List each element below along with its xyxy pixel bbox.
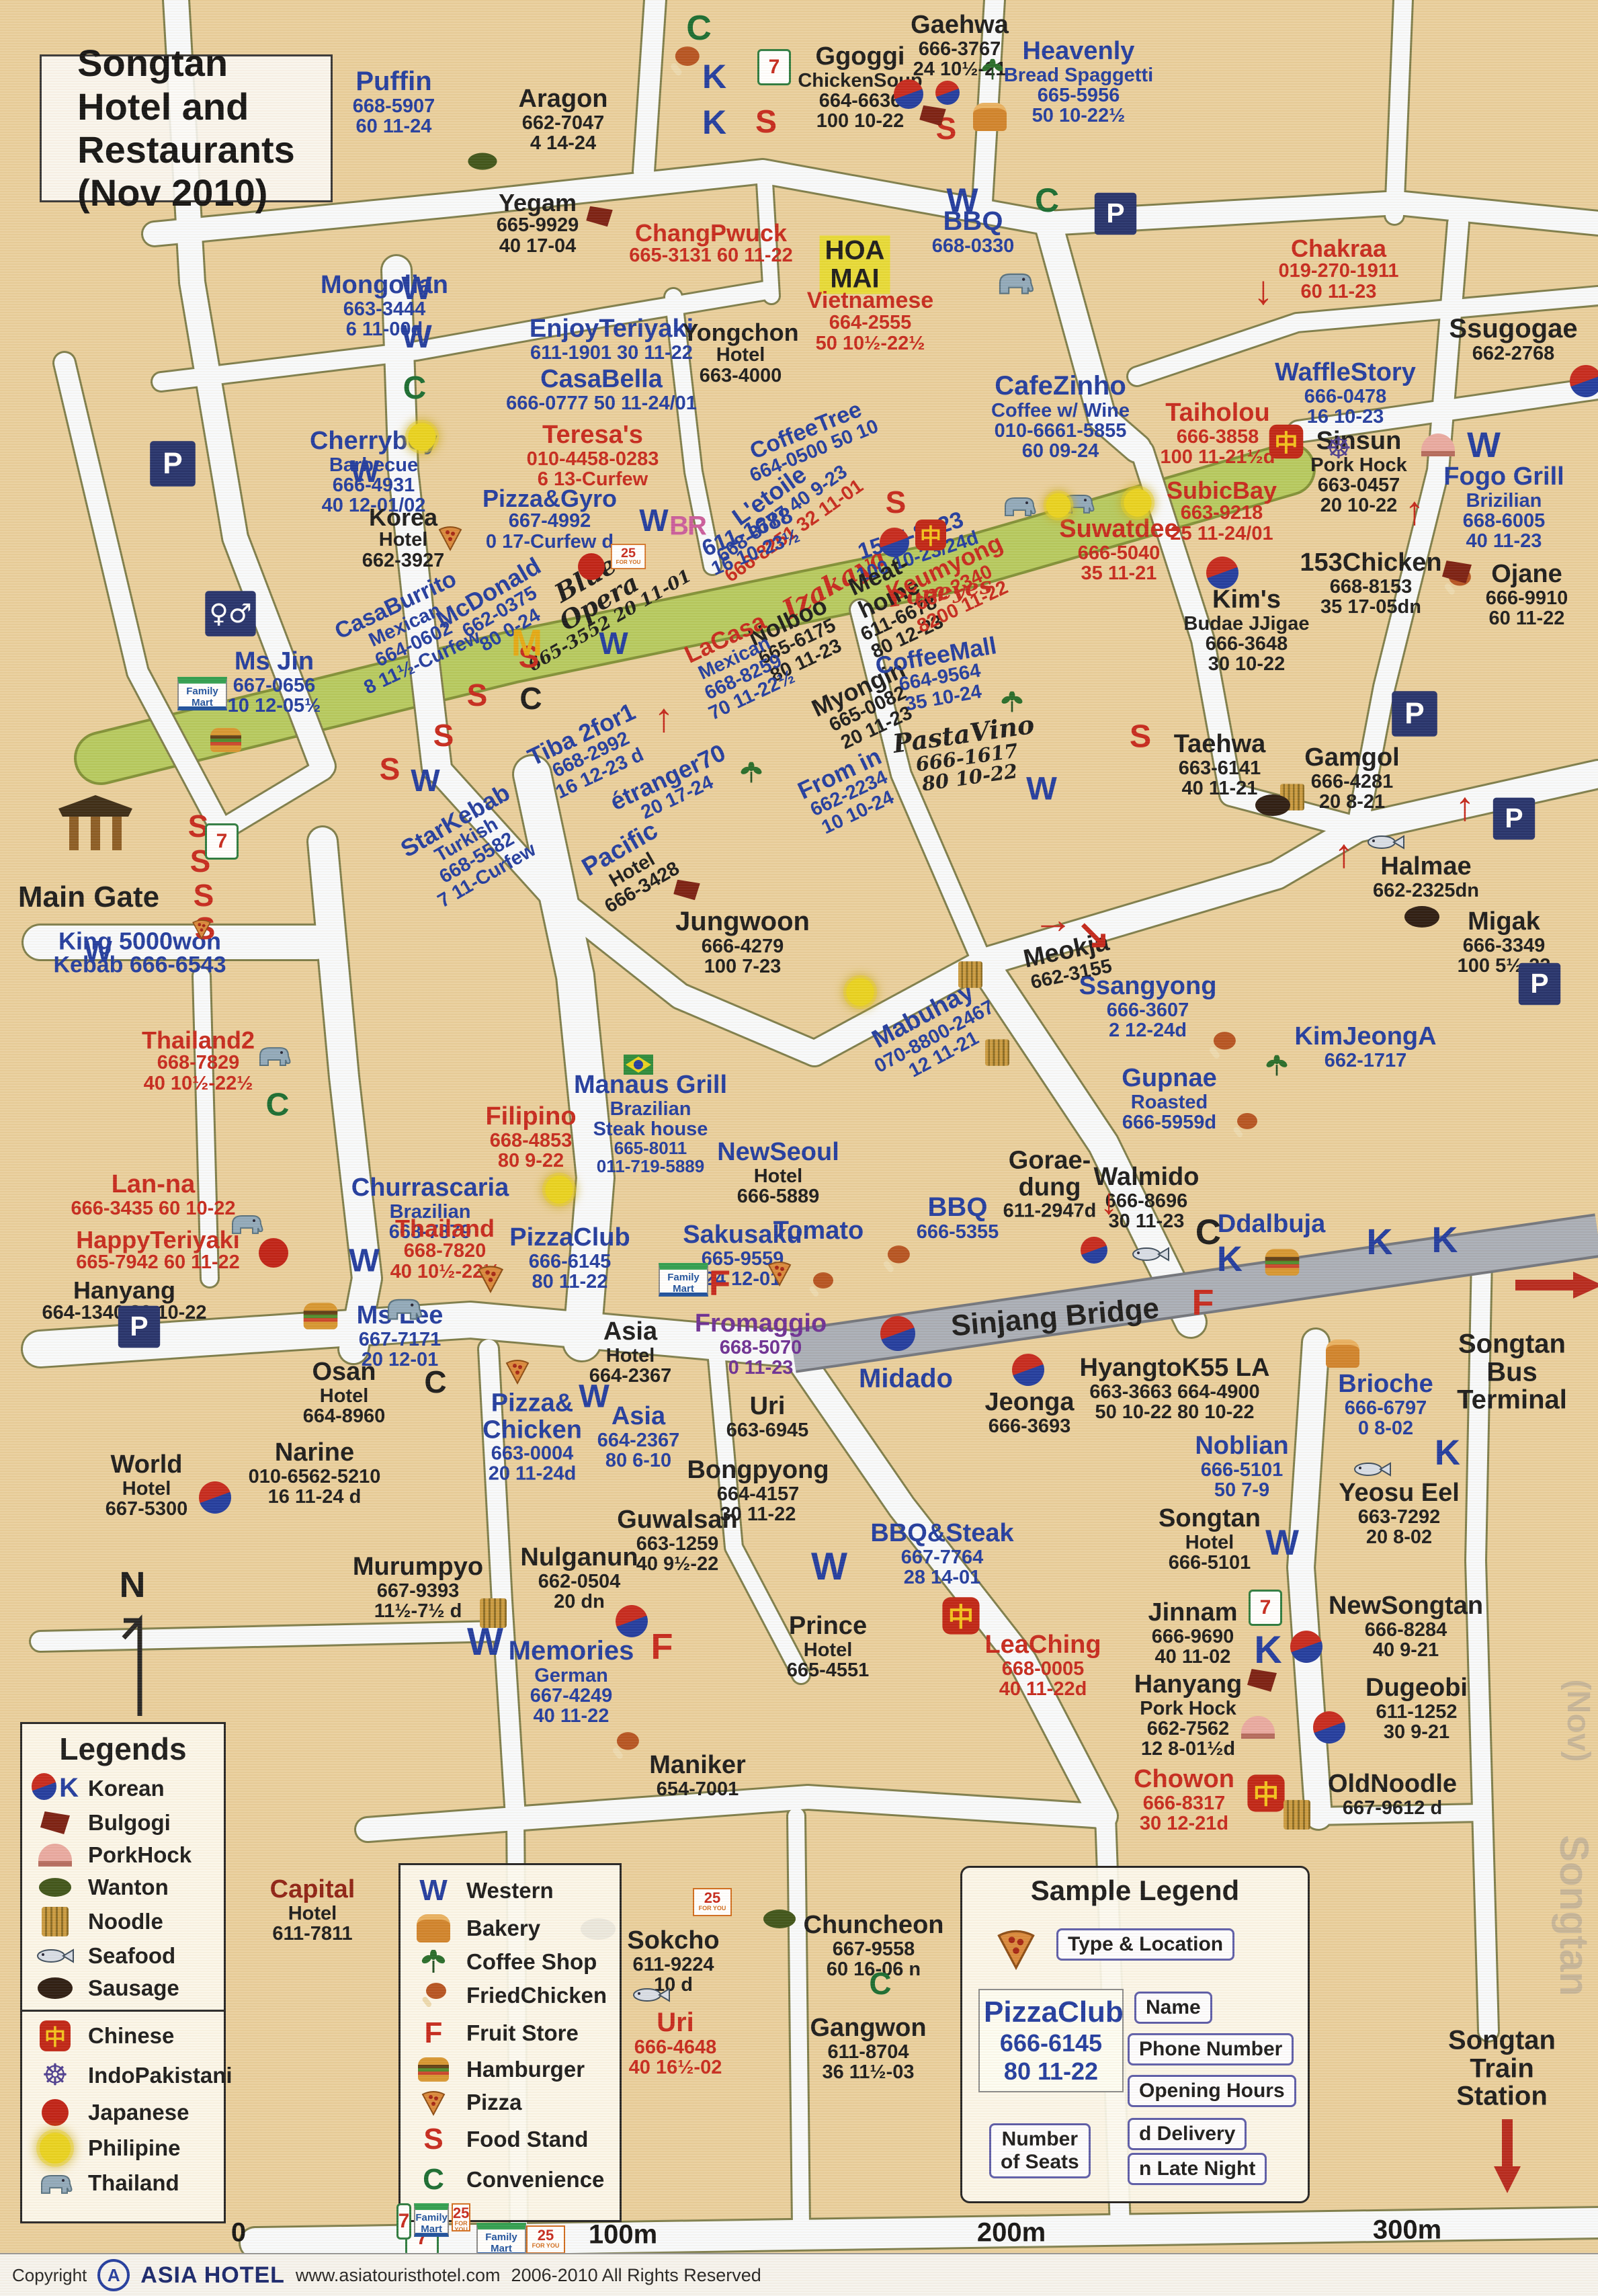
narine-line-2: 16 11-24 d [249, 1487, 381, 1507]
leaching: LeaChing668-000540 11-22d [984, 1632, 1101, 1699]
m-c6: C [869, 1968, 891, 2000]
pizza-icon [995, 1927, 1038, 1970]
ojane-line-0: Ojane [1486, 561, 1568, 588]
noo-icon [958, 961, 982, 988]
dugeobi-line-1: 611-1252 [1365, 1702, 1468, 1722]
ggoggi-taegeuk [935, 81, 960, 105]
teresas: Teresa's010-4458-02836 13-Curfew [527, 422, 659, 489]
sokcho: Sokcho611-922410 d [627, 1928, 719, 1995]
nulganun-line-0: Nulganun [520, 1545, 638, 1571]
noblian-line-1: 666-5101 [1195, 1460, 1288, 1480]
pork-icon [1241, 1716, 1275, 1739]
prince-line-0: Prince [787, 1613, 870, 1640]
m-s5-line-0: S [433, 720, 454, 752]
pizza-icon [420, 2089, 447, 2116]
aragon-line-0: Aragon [519, 86, 608, 113]
m-7a-seven: 7 [757, 49, 791, 85]
gangwon-line-1: 611-8704 [810, 2042, 926, 2062]
jinnam-line-1: 666-9690 [1148, 1627, 1237, 1647]
heavenly-line-0: Heavenly [1004, 38, 1153, 65]
king5000-pza [191, 918, 212, 940]
thailand2-line-1: 668-7829 [142, 1053, 255, 1073]
legend-type-label: Bakery [466, 1916, 540, 1941]
changpwuck: ChangPwuck665-3131 60 11-22 [629, 220, 793, 266]
halmae-fish [1367, 834, 1404, 850]
manausgrill-line-2: Steak house [574, 1119, 727, 1139]
bbq-mid-drum [881, 1244, 911, 1275]
hoamai-info-line-2: 50 10½-22½ [807, 333, 933, 354]
chuncheon-line-1: 667-9558 [804, 1939, 944, 1959]
coffee-plant-icon [420, 1950, 447, 1974]
memories-line-0: Memories [509, 1637, 634, 1666]
ggoggi-bul [919, 106, 946, 126]
ggoggi-line-3: 100 10-22 [798, 111, 922, 131]
nulganun-taegeuk [616, 1605, 648, 1637]
msjin: Ms Jin667-065610 12-05½ [228, 649, 321, 716]
halmae-line-0: Halmae [1373, 854, 1479, 880]
saus-icon [38, 1977, 73, 1999]
m-w7-line-0: W [411, 765, 439, 797]
kims: Kim'sBudae JJigae666-364830 10-22 [1184, 587, 1310, 674]
walmido-taegeuk [1081, 1237, 1107, 1264]
wafflestory-line-2: 16 10-23 [1275, 407, 1416, 427]
prince: PrinceHotel665-4551 [787, 1613, 870, 1680]
map-title-box: Songtan Hotel and Restaurants (Nov 2010) [40, 54, 333, 202]
sample-legend-box: Sample Legend Type & Location PizzaClub … [960, 1866, 1310, 2203]
coffee-plant-icon [1265, 1055, 1289, 1077]
songtan-hotel-line-0: Songtan [1159, 1506, 1261, 1532]
pizzaclub-line-2: 80 11-22 [509, 1272, 630, 1292]
goraedung-line-2: 611-2947d [1003, 1200, 1097, 1221]
songtan-hotel-line-2: 666-5101 [1159, 1553, 1261, 1573]
pizzaclub: PizzaClub666-614580 11-22 [509, 1225, 630, 1292]
uri-s: Uri666-464840 16½-02 [629, 2009, 722, 2078]
bbqsteak-line-2: 28 14-01 [870, 1567, 1013, 1588]
brd-icon [973, 103, 1007, 131]
compass-arrow-icon [120, 1608, 156, 1716]
legend-food-label: IndoPakistani [88, 2063, 233, 2088]
callout-seats: Number of Seats [989, 2123, 1091, 2178]
compass-n-line-0: N [120, 1566, 146, 1604]
aragon-wan [468, 153, 497, 169]
yongchon-line-1: Hotel [682, 345, 798, 366]
filipino: Filipino668-485380 9-22 [485, 1104, 576, 1171]
leaching-line-2: 40 11-22d [984, 1679, 1101, 1699]
asia-hotel-logo: A [97, 2259, 130, 2291]
callout-delivery: d Delivery [1128, 2118, 1247, 2150]
legend-food-item-sausage: Sausage [22, 1972, 224, 2004]
fm-icon: FamilyMart [659, 1263, 708, 1297]
footer: Copyright A ASIA HOTEL www.asiatouristho… [0, 2253, 1598, 2296]
narine: Narine010-6562-521016 11-24 d [249, 1440, 381, 1507]
train-station-trainarrow [1494, 2119, 1521, 2193]
heavenly-line-2: 665-5956 [1004, 85, 1153, 106]
sun-icon [846, 978, 874, 1006]
thailand2: Thailand2668-782940 10½-22½ [142, 1028, 255, 1094]
leaching-line-0: LeaChing [984, 1632, 1101, 1659]
ghost-1-line-0: Songtan [1553, 1835, 1595, 1996]
mcd-icon: M [511, 621, 543, 665]
prince-line-1: Hotel [787, 1640, 870, 1660]
yeosu-line-1: 663-7292 [1339, 1507, 1460, 1527]
capital-line-1: Hotel [270, 1903, 355, 1924]
m-s1: S [755, 106, 777, 139]
m-c5-line-0: C [424, 1366, 446, 1399]
uri-s-fish [632, 1987, 670, 2003]
m-f2: F [651, 1628, 673, 1666]
pork-icon [38, 1844, 72, 1867]
elephant-icon [384, 1295, 422, 1320]
yongchon-line-2: 663-4000 [682, 366, 798, 386]
jinnam-line-0: Jinnam [1148, 1600, 1237, 1627]
cafezinho-line-0: CafeZinho [991, 372, 1130, 401]
footer-brand: ASIA HOTEL [140, 2262, 285, 2289]
songtan-hotel-line-1: Hotel [1159, 1532, 1261, 1553]
memories-line-3: 40 11-22 [509, 1706, 634, 1726]
letter-W-icon: W [1265, 1523, 1299, 1563]
chn-icon: 中 [1247, 1774, 1284, 1811]
bbqsteak: BBQ&Steak667-776428 14-01 [870, 1520, 1013, 1588]
noblian-line-2: 50 7-9 [1195, 1480, 1288, 1500]
ghost-2-line-0: (Nov) [1561, 1680, 1595, 1762]
m-ar5: ↑ [1455, 786, 1475, 827]
m-w1-line-0: W [946, 183, 978, 218]
legend-food-label: PorkHock [88, 1842, 192, 1868]
pizzachicken-line-0: Pizza& [482, 1390, 582, 1417]
chakraa-line-1: 019-270-1911 [1279, 261, 1399, 282]
bbqsteak-line-1: 667-7764 [870, 1547, 1013, 1567]
gaehwa-line-0: Gaehwa [911, 12, 1009, 39]
noo-icon [985, 1039, 1009, 1066]
manausgrill: Manaus GrillBrazilianSteak house665-8011… [574, 1072, 727, 1176]
mabuhay-sun [846, 978, 874, 1006]
jungwoon: Jungwoon666-4279100 7-23 [675, 908, 810, 977]
newseoul: NewSeoulHotel666-5889 [717, 1139, 839, 1206]
pizzachicken: Pizza&Chicken663-000420 11-24d [482, 1390, 582, 1483]
pizza-icon [995, 1927, 1038, 1970]
dugeobi-taegeuk [1313, 1711, 1345, 1744]
legend-food-item-korean: KKorean [22, 1770, 224, 1807]
m-7b-seven: 7 [205, 823, 239, 860]
casabella-line-0: CasaBella [506, 366, 697, 393]
letter-F-icon: F [709, 1264, 730, 1304]
chakraa-line-2: 60 11-23 [1279, 282, 1399, 302]
scale-label-0: 0 [231, 2218, 246, 2248]
migak-line-1: 666-3349 [1458, 936, 1551, 956]
br-icon: BR [669, 511, 706, 542]
elephant-icon [256, 1044, 291, 1067]
legend-type-label: Convenience [466, 2167, 604, 2192]
guwalsan-line-0: Guwalsan [617, 1507, 738, 1534]
asia-hotel-line-1: Hotel [589, 1346, 672, 1366]
letter-K-icon: K [1254, 1629, 1281, 1673]
footer-copyright: Copyright [12, 2265, 87, 2286]
yongchon: YongchonHotel663-4000 [682, 320, 798, 386]
aragon: Aragon662-70474 14-24 [519, 86, 608, 153]
chowon-line-0: Chowon [1134, 1766, 1234, 1793]
taehwa-line-2: 40 11-21 [1174, 778, 1266, 798]
pizzaclub-pza [476, 1264, 505, 1293]
m-ar6-line-0: → [1033, 899, 1073, 940]
jinnam-letter-K-b: K [1254, 1629, 1281, 1673]
m-s6-line-0: S [886, 487, 907, 519]
gupnae-line-0: Gupnae [1122, 1065, 1216, 1092]
chakraa-line-0: Chakraa [1279, 236, 1399, 261]
pizzagyro-line-2: 0 17-Curfew d [482, 532, 617, 552]
m-f1: F [1192, 1284, 1214, 1321]
murumpyo-line-2: 11½-7½ d [353, 1601, 483, 1621]
newseoul-line-1: Hotel [717, 1166, 839, 1186]
kims-line-0: Kim's [1184, 587, 1310, 614]
bbq-mid-line-1: 666-5355 [917, 1222, 999, 1242]
callout-latenight: n Late Night [1128, 2153, 1267, 2185]
songtan-hotel-letter-W-b: W [1265, 1523, 1299, 1563]
capital-line-2: 611-7811 [270, 1924, 355, 1944]
heavenly-brd [973, 103, 1007, 131]
teresas-line-0: Teresa's [527, 422, 659, 449]
king5000-letter-W-b: W [84, 935, 112, 969]
letter-W-icon: W [811, 1546, 847, 1590]
legend-food-label: Sausage [88, 1975, 179, 2001]
m-f2-line-0: F [651, 1628, 673, 1666]
brd-icon [1326, 1340, 1359, 1368]
memories-line-2: 667-4249 [509, 1686, 634, 1706]
gupnae-drum [1231, 1112, 1258, 1140]
filipino-line-2: 80 9-22 [485, 1151, 576, 1171]
drumstick-icon [807, 1271, 834, 1299]
m-c6-line-0: C [869, 1968, 891, 2000]
manausgrill-flagbr [624, 1055, 653, 1075]
gamgol-saus [1255, 794, 1290, 816]
sinsun-line-2: 663-0457 [1310, 475, 1406, 495]
footer-url: www.asiatouristhotel.com [296, 2265, 501, 2286]
ssangyong-drum [1207, 1030, 1236, 1061]
capital-line-0: Capital [270, 1877, 355, 1903]
m-k4: K [1432, 1221, 1458, 1259]
heavenly: HeavenlyBread Spaggetti665-595650 10-22½ [1004, 38, 1153, 126]
brioche-line-0: Brioche [1338, 1371, 1433, 1398]
park-icon: P [1519, 963, 1560, 1005]
korea-hotel: KoreaHotel662-3927 [362, 505, 445, 571]
legend-type-label: Food Stand [466, 2127, 588, 2152]
nulganun: Nulganun662-050420 dn [520, 1545, 638, 1612]
casabella-line-1: 666-0777 50 11-24/01 [506, 393, 697, 413]
chn-icon: 中 [915, 520, 946, 550]
wan-icon [39, 1878, 71, 1897]
brioche-brd [1326, 1340, 1359, 1368]
wc-icon: ♀♂ [205, 591, 255, 637]
legend-type-label: Hamburger [466, 2057, 585, 2082]
gamgol-line-0: Gamgol [1304, 745, 1399, 772]
bongpyong-line-1: 664-4157 [687, 1484, 829, 1504]
bul-icon [1247, 1669, 1277, 1692]
nulganun-line-1: 662-0504 [520, 1571, 638, 1592]
newsongtan-line-2: 40 9-21 [1329, 1640, 1483, 1660]
m-c4-line-0: C [519, 683, 542, 715]
callout-hours: Opening Hours [1128, 2075, 1296, 2107]
m-s11-line-0: S [380, 753, 401, 786]
taegeuk-icon [1081, 1237, 1107, 1264]
memories: MemoriesGerman667-424940 11-22 [509, 1637, 634, 1726]
chowon: Chowon666-831730 12-21d [1134, 1766, 1234, 1834]
asia-w-line-2: 80 6-10 [597, 1450, 680, 1471]
legend-food-label: Wanton [88, 1875, 169, 1900]
m-w4-line-0: W [350, 456, 379, 488]
korea-hotel-line-0: Korea [362, 505, 445, 530]
memories-letter-W-b: W [467, 1621, 503, 1665]
hyangto-k55: HyangtoK55 LA663-3663 664-490050 10-22 8… [1080, 1355, 1270, 1422]
sinsun-pork [1421, 434, 1455, 456]
m-ar6: → [1033, 899, 1073, 940]
fogogrill-line-0: Fogo Grill [1443, 464, 1564, 491]
jungwoon-line-2: 100 7-23 [675, 956, 810, 977]
m-w4: W [350, 456, 379, 488]
thailand2-letter-C-g: C [266, 1087, 290, 1124]
goraedung-line-0: Gorae- [1003, 1147, 1097, 1174]
msjin-bgr [210, 728, 241, 752]
uri-n: Uri663-6945 [726, 1393, 809, 1440]
main-gate-gate [58, 794, 132, 853]
sokcho-line-1: 611-9224 [627, 1955, 719, 1975]
m-eleph2-eleph [1001, 494, 1036, 517]
newseoul-line-0: NewSeoul [717, 1139, 839, 1166]
letter-W-icon: W [84, 935, 112, 969]
bgr-icon [304, 1303, 338, 1329]
callout-phone: Phone Number [1128, 2033, 1294, 2065]
coffee-plant-icon [739, 762, 763, 784]
legend-type-item-western: WWestern [401, 1871, 620, 1911]
legend-food-label: Seafood [88, 1943, 175, 1969]
m-ar2: ↑ [1404, 490, 1425, 532]
pizza-icon [437, 524, 464, 551]
m-tg2-taegeuk [880, 528, 909, 557]
coffee-plant-icon [980, 59, 1005, 81]
legend-type-item-fruit-store: FFruit Store [401, 2013, 620, 2053]
legend-type-label: FriedChicken [466, 1983, 607, 2008]
happyteriyaki-jap [259, 1238, 288, 1268]
thailand2-eleph [256, 1044, 291, 1067]
gupnae: GupnaeRoasted666-5959d [1122, 1065, 1216, 1133]
filipino-line-1: 668-4853 [485, 1131, 576, 1151]
aragon-line-1: 662-7047 [519, 113, 608, 133]
bul-icon [919, 106, 946, 126]
midado: Midado [859, 1365, 953, 1393]
letter-S-icon: S [1130, 719, 1151, 755]
park-icon: P [1095, 193, 1136, 235]
m-s11: S [380, 753, 401, 786]
oldnoodle-noo [1284, 1800, 1310, 1830]
ghost-1: Songtan [1553, 1835, 1595, 1996]
brioche-line-1: 666-6797 [1338, 1398, 1433, 1418]
taegeuk-icon [894, 79, 923, 109]
ssangyong-line-2: 2 12-24d [1079, 1020, 1217, 1040]
chakraa: Chakraa019-270-191160 11-23 [1279, 236, 1399, 302]
kims-line-2: 666-3648 [1184, 634, 1310, 654]
sun-icon [1046, 493, 1071, 518]
ssangyong-line-0: Ssangyong [1079, 973, 1217, 1000]
suwatdee-line-0: Suwatdee [1059, 516, 1178, 543]
legend-food-item-chinese: 中Chinese [22, 2017, 224, 2055]
fish-icon [1132, 1246, 1169, 1262]
ssugogae: Ssugogae662-2768 [1449, 315, 1577, 364]
noblian: Noblian666-510150 7-9 [1195, 1433, 1288, 1500]
letter-W-icon: W [1026, 771, 1057, 808]
legend-food-label: Philipine [88, 2135, 181, 2161]
fm-icon: FamilyMart [177, 677, 227, 710]
saus-icon [1404, 906, 1439, 928]
legend-type-item-food-stand: SFood Stand [401, 2119, 620, 2160]
seven-icon: 7 [205, 823, 239, 860]
m-tg1-taegeuk [894, 79, 923, 109]
jungwoon-line-0: Jungwoon [675, 908, 810, 936]
m-ar1-line-0: ↑ [654, 697, 674, 739]
ddalbuja-bgr [1265, 1249, 1300, 1276]
fogogrill-line-3: 40 11-23 [1443, 531, 1564, 551]
hoamai: HOAMAI [820, 235, 890, 294]
fish-icon [632, 1987, 670, 2003]
pork-icon [1421, 434, 1455, 456]
pizza-icon [504, 1358, 531, 1385]
bbq-north-line-1: 668-0330 [932, 236, 1015, 256]
noblian-line-0: Noblian [1195, 1433, 1288, 1460]
drumstick-icon [1231, 1112, 1258, 1140]
pacific-bul [673, 880, 700, 901]
fish-icon [36, 1948, 74, 1964]
hoamai-info-line-1: 664-2555 [807, 313, 933, 333]
legend-type-box: WWesternBakeryCoffee ShopFriedChickenFFr… [398, 1863, 622, 2222]
murumpyo: Murumpyo667-939311½-7½ d [353, 1554, 483, 1621]
newseoul-line-2: 666-5889 [717, 1186, 839, 1206]
chicken153-line-0: 153Chicken [1300, 550, 1441, 577]
manausgrill-line-0: Manaus Grill [574, 1072, 727, 1099]
compass-n: N [120, 1566, 146, 1604]
world-hotel-line-0: World [106, 1452, 188, 1479]
etranger-plt [739, 762, 763, 784]
osan: OsanHotel664-8960 [303, 1359, 386, 1426]
bul-icon [673, 880, 700, 901]
bbqsteak-line-0: BBQ&Steak [870, 1520, 1013, 1547]
m-w1: W [946, 183, 978, 218]
m-br-br: BR [669, 511, 706, 542]
subicbay-line-1: 663-9218 [1167, 503, 1277, 524]
goraedung: Gorae-dung611-2947d [1003, 1147, 1097, 1221]
park-icon: P [118, 1306, 160, 1348]
m-ar4-line-0: ↑ [1334, 833, 1354, 874]
uri-s-line-0: Uri [629, 2009, 722, 2037]
letter-C-icon: C [423, 2163, 444, 2197]
bgr-icon [210, 728, 241, 752]
yeosu: Yeosu Eel663-729220 8-02 [1339, 1480, 1460, 1547]
bus-terminal-line-2: Terminal [1457, 1387, 1567, 1415]
mslee-bgr [304, 1303, 338, 1329]
m-k1: K [702, 59, 726, 94]
brioche-letter-K-b: K [1435, 1433, 1460, 1473]
kimjeonga: KimJeongA662-1717 [1294, 1024, 1436, 1071]
jeonga-line-1: 666-3693 [984, 1416, 1074, 1436]
ojane-line-1: 666-9910 [1486, 588, 1568, 608]
legend-food-item-bulgogi: Bulgogi [22, 1807, 224, 1839]
msjin-line-1: 667-0656 [228, 675, 321, 696]
pizzachicken-line-2: 663-0004 [482, 1443, 582, 1463]
letter-C-icon: C [266, 1087, 290, 1124]
drumstick-icon [668, 45, 700, 79]
cafezinho-line-3: 60 09-24 [991, 441, 1130, 461]
m-ar3-line-0: ↓ [1253, 270, 1273, 311]
fromaggio: Fromaggio668-50700 11-23 [695, 1311, 827, 1378]
enjoyteriyaki-line-0: EnjoyTeriyaki [530, 316, 693, 343]
capital: CapitalHotel611-7811 [270, 1877, 355, 1944]
wafflestory-line-1: 666-0478 [1275, 386, 1416, 407]
